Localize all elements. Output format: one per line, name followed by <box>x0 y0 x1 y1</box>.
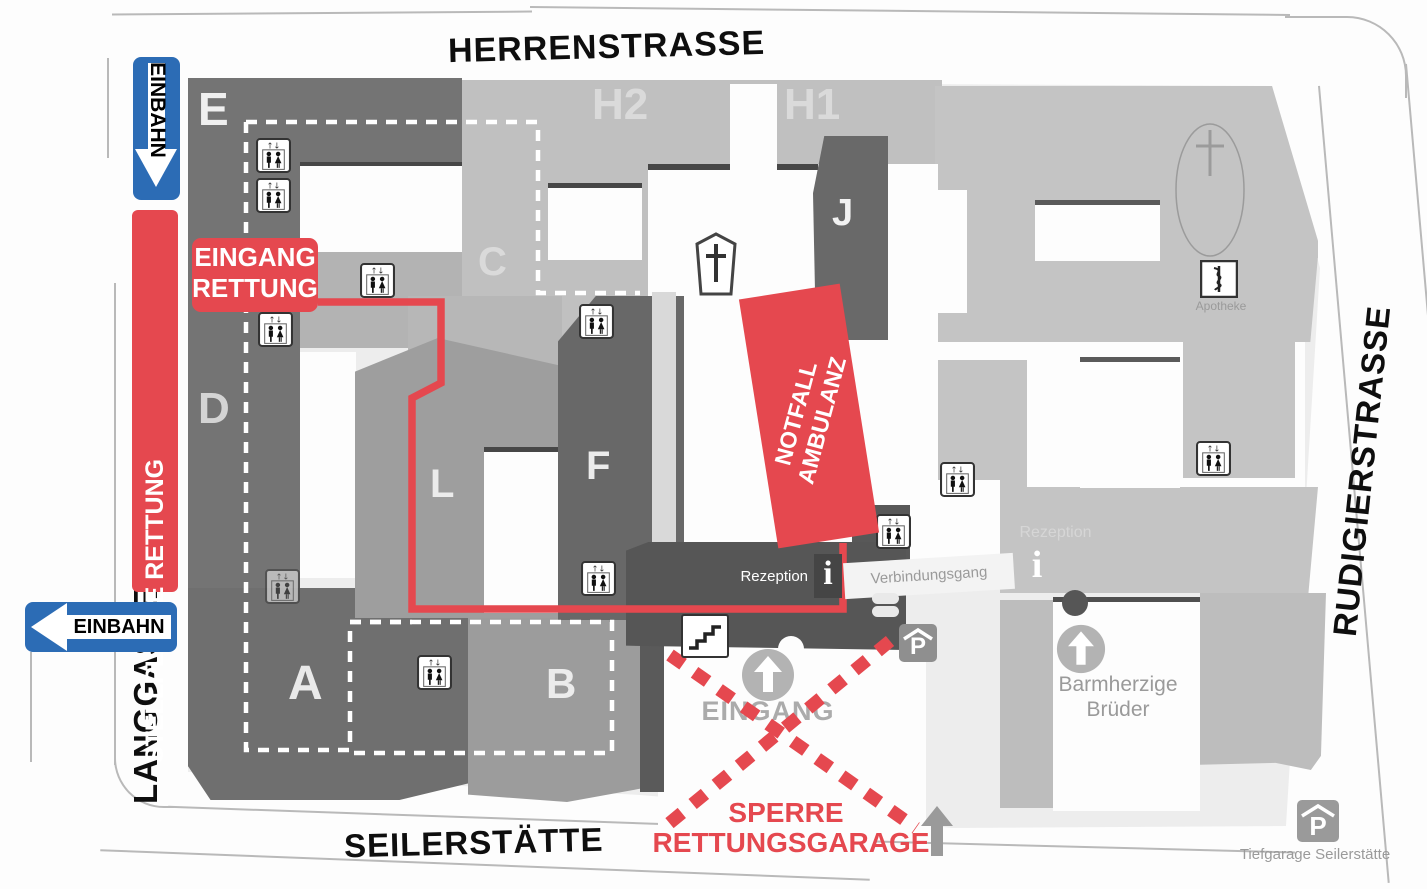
einbahn-sign-horizontal: EINBAHN <box>25 602 177 652</box>
tiefgarage-label: Tiefgarage Seilerstätte <box>1215 846 1415 863</box>
einbahn-horizontal-label: EINBAHN <box>67 615 171 639</box>
courtyard-C <box>548 183 642 260</box>
svg-text:↑↓: ↑↓ <box>267 140 281 150</box>
courtyard-notch-bump <box>1062 590 1088 616</box>
courtyard-D-L <box>300 352 356 578</box>
building-label-C: C <box>478 240 507 285</box>
building-label-E: E <box>198 82 229 136</box>
eingang-rettung-line2: RETTUNG <box>192 273 318 304</box>
einbahn-sign-vertical: EINBAHN <box>133 57 180 200</box>
building-A <box>188 588 470 800</box>
svg-text:↑↓: ↑↓ <box>592 563 606 573</box>
eingang-arrow-icon <box>741 648 795 702</box>
courtyard-E <box>300 160 462 260</box>
info-icon-right: i <box>1022 544 1052 588</box>
building-label-B: B <box>546 660 576 708</box>
stellplaetze-rettung-bar: STELLPLÄTZE RETTUNG <box>132 210 178 592</box>
garage-roof-icon <box>902 627 934 641</box>
elevator-icon: ↑↓ <box>265 569 300 604</box>
chapel-icon <box>693 232 739 298</box>
street-curb <box>114 283 116 765</box>
einbahn-arrow-left-head <box>31 603 67 651</box>
apotheke-band <box>935 256 1318 342</box>
tiefgarage-parking-icon: P <box>1297 800 1339 842</box>
street-seilerstaette: SEILERSTÄTTE <box>344 821 604 866</box>
sperre-label-line1: SPERRE <box>686 797 886 829</box>
garage-roof-icon <box>1300 803 1336 818</box>
building-label-H2: H2 <box>592 80 648 130</box>
svg-text:↑↓: ↑↓ <box>267 180 281 190</box>
street-rudigierstrasse: RUDIGIERSTRASSE <box>1322 270 1402 672</box>
svg-text:↑↓: ↑↓ <box>590 306 604 316</box>
elevator-icon: ↑↓ <box>258 312 293 347</box>
barmherzige-label: Barmherzige Brüder <box>1040 672 1196 722</box>
elevator-icon: ↑↓ <box>256 178 291 213</box>
building-label-L: L <box>430 462 454 507</box>
pharmacy-icon <box>1200 260 1238 298</box>
svg-text:↑↓: ↑↓ <box>276 571 290 581</box>
einbahn-vertical-label: EINBAHN <box>144 50 170 170</box>
connector-pill <box>872 593 899 604</box>
street-curb <box>112 11 532 16</box>
elevator-icon: ↑↓ <box>876 514 911 549</box>
elevator-icon: ↑↓ <box>417 655 452 690</box>
building-B <box>468 618 648 802</box>
street-curb <box>530 6 1290 16</box>
eingang-rettung-box: EINGANG RETTUNG <box>192 238 318 312</box>
eingang-rettung-line1: EINGANG <box>192 242 318 273</box>
street-curb <box>1405 64 1427 889</box>
apotheke-label: Apotheke <box>1186 299 1256 313</box>
elevator-icon: ↑↓ <box>360 263 395 298</box>
street-curb <box>1285 16 1407 98</box>
elevator-icon: ↑↓ <box>256 138 291 173</box>
building-label-H1: H1 <box>784 80 840 130</box>
svg-text:↑↓: ↑↓ <box>1207 443 1221 453</box>
notfall-ambulanz-label: NOTFALL AMBULANZ <box>757 313 861 520</box>
courtyard-east-mid <box>1035 200 1160 261</box>
elevator-icon: ↑↓ <box>581 561 616 596</box>
elevator-icon: ↑↓ <box>940 462 975 497</box>
courtyard-east-narrow <box>930 190 967 313</box>
street-herrenstrasse: HERRENSTRASSE <box>448 24 766 71</box>
rezeption-left-label: Rezeption <box>720 568 808 585</box>
svg-text:↑↓: ↑↓ <box>951 464 965 474</box>
south-east-block <box>1200 593 1326 770</box>
chapel-oval <box>1170 112 1250 262</box>
hospital-site-map: STELLPLÄTZE RETTUNG EINGANG RETTUNG NOTF… <box>0 0 1427 889</box>
courtyard-east-west-row <box>1080 357 1180 488</box>
svg-text:↑↓: ↑↓ <box>371 265 385 275</box>
connector-pill <box>872 606 899 617</box>
street-curb <box>107 58 109 158</box>
building-label-J: J <box>832 192 853 235</box>
elevator-icon: ↑↓ <box>579 304 614 339</box>
building-label-F: F <box>586 444 610 489</box>
barmherzige-arrow-icon <box>1056 624 1106 674</box>
svg-text:↑↓: ↑↓ <box>428 657 442 667</box>
stairs-icon <box>681 614 729 658</box>
svg-text:↑↓: ↑↓ <box>269 314 283 324</box>
sperre-label-line2: RETTUNGSGARAGE <box>646 827 936 859</box>
info-icon-left: i <box>814 554 842 598</box>
building-label-D: D <box>198 384 230 434</box>
street-curb <box>30 652 32 762</box>
svg-text:↑↓: ↑↓ <box>887 516 901 526</box>
courtyard-L <box>484 447 560 613</box>
building-label-A: A <box>288 656 323 711</box>
parking-garage-icon: P <box>899 624 937 662</box>
h1-notch <box>730 84 777 178</box>
rezeption-right-label: Rezeption <box>1008 524 1103 542</box>
elevator-icon: ↑↓ <box>1196 441 1231 476</box>
